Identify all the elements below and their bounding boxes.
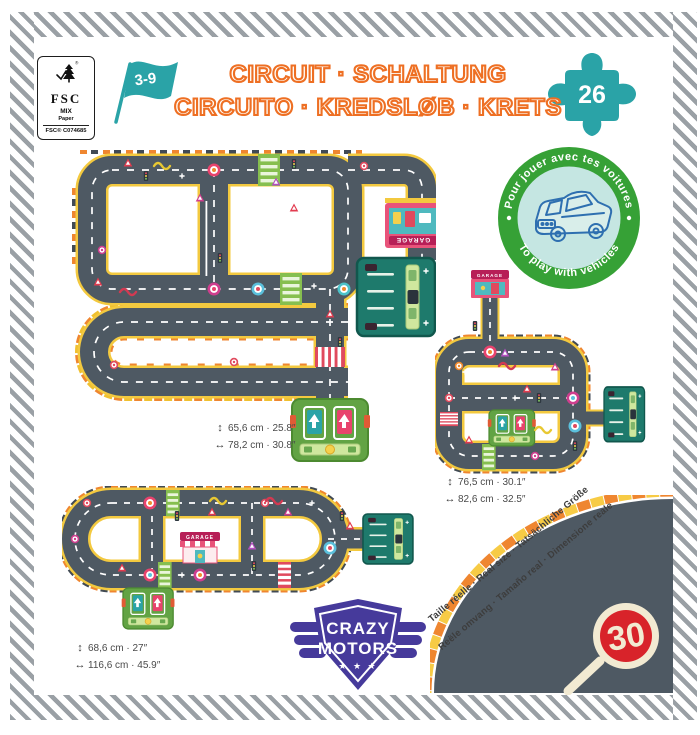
crosswalk-red [278,562,291,588]
crosswalk-green [482,444,496,470]
roundabout-icon [208,283,221,296]
title-line-1: CIRCUIT · SCHALTUNG [168,58,568,91]
fsc-code: FSC® C074685 [38,128,94,134]
circuit-3-width-label: 116,6 cm · 45.9″ [88,660,160,671]
charging-station [290,399,370,461]
circuit-2-dimensions: ↕76,5 cm · 30.1″ ↔82,6 cm · 32.5″ [442,474,525,508]
garage-sign: GARAGE [477,273,503,278]
frame-border-bottom [10,695,697,720]
garage-building: GARAGE [385,198,436,248]
road-sign-icon [98,246,106,254]
parking-area [357,258,435,336]
fsc-label: FSC [38,91,94,107]
circuit-3-height-label: 68,6 cm · 27″ [88,643,147,654]
road-sign-icon [445,394,453,402]
roundabout-icon [194,569,207,582]
height-arrow-icon: ↕ [212,420,228,437]
traffic-light-icon [340,511,344,521]
traffic-light-icon [338,337,342,347]
circuit-2-height-label: 76,5 cm · 30.1″ [458,477,525,488]
roundabout-icon [569,420,582,433]
traffic-light-icon [573,441,577,451]
traffic-light-icon [473,321,477,331]
roundabout-icon [208,164,221,177]
brand-name-line-1: CRAZY [326,619,390,638]
roundabout-icon [144,497,157,510]
crosswalk-green [158,562,172,588]
charging-station [488,410,536,446]
speed-limit-value: 30 [604,615,648,659]
road-sign-icon [531,452,539,460]
parking-area [363,514,413,564]
circuit-1-width-label: 78,2 cm · 30.8″ [228,440,295,451]
traffic-light-icon [144,171,148,181]
roundabout-icon [338,283,351,296]
fsc-mix: MIX [38,108,94,115]
crosswalk-green [280,273,302,305]
frame-border-top [10,12,697,37]
garage-sign: GARAGE [396,236,431,243]
garage-sign: GARAGE [186,535,214,541]
traffic-light-icon [175,511,179,521]
circuit-2-width-label: 82,6 cm · 32.5″ [458,494,525,505]
age-range-label: 3-9 [134,70,158,90]
packaging-panel: ® FSC MIX Paper FSC® C074685 3-9 CIRCUIT… [0,0,700,735]
svg-text:®: ® [75,60,79,66]
roundabout-icon [324,542,337,555]
roundabout-icon [484,346,497,359]
circuit-3-dimensions: ↕68,6 cm · 27″ ↔116,6 cm · 45.9″ [72,640,160,674]
fsc-certification-label: ® FSC MIX Paper FSC® C074685 [37,56,95,140]
warning-triangle-icon [290,204,299,212]
product-title: CIRCUIT · SCHALTUNG CIRCUITO · KREDSLØB … [168,58,568,124]
road-sign-icon [71,535,79,543]
road-sign-icon [83,499,91,507]
circuit-2-illustration: GARAGE [435,268,647,474]
fsc-paper: Paper [38,116,94,122]
circuit-1-dimensions: ↕65,6 cm · 25.8″ ↔78,2 cm · 30.8″ [212,420,295,454]
traffic-light-icon [252,561,256,571]
arrow-squiggle-icon [535,427,551,433]
width-arrow-icon: ↔ [442,491,458,508]
width-arrow-icon: ↔ [212,437,228,454]
traffic-light-icon [292,159,296,169]
frame-border-left [10,12,34,720]
brand-name-line-2: MOTORS [318,639,398,658]
height-arrow-icon: ↕ [442,474,458,491]
road-sign-icon [360,162,368,170]
road-sign-icon [110,361,118,369]
garage-building: GARAGE [471,270,509,298]
traffic-light-icon [537,393,541,403]
parking-area [604,387,645,442]
garage-building: GARAGE [180,532,220,563]
road-sign-icon [455,362,463,370]
frame-border-right [673,12,697,720]
fsc-tree-icon: ® [53,60,79,86]
width-arrow-icon: ↔ [72,657,88,674]
road-sign-icon [230,358,238,366]
traffic-light-icon [218,253,222,263]
circuit-1-height-label: 65,6 cm · 25.8″ [228,423,295,434]
crazy-motors-logo: CRAZY MOTORS ★ ★ ★ [290,594,426,696]
speed-limit-sign: 30 [593,603,659,669]
height-arrow-icon: ↕ [72,640,88,657]
title-line-2: CIRCUITO · KREDSLØB · KRETS [168,91,568,124]
roundabout-icon [144,569,157,582]
roundabout-icon [252,283,265,296]
pieces-count: 26 [578,81,606,109]
crosswalk-red [315,347,345,367]
brand-stars: ★ ★ ★ [338,661,377,671]
charging-station [122,588,175,629]
roundabout-icon [567,392,580,405]
crosswalk-red [440,412,458,426]
